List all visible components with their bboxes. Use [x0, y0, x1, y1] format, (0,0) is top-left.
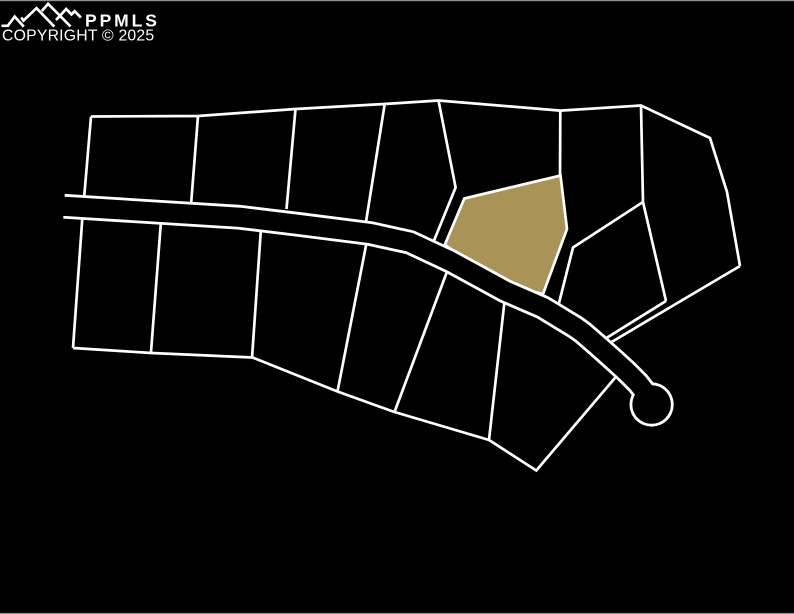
svg-text:COPYRIGHT © 2025: COPYRIGHT © 2025	[2, 28, 154, 45]
